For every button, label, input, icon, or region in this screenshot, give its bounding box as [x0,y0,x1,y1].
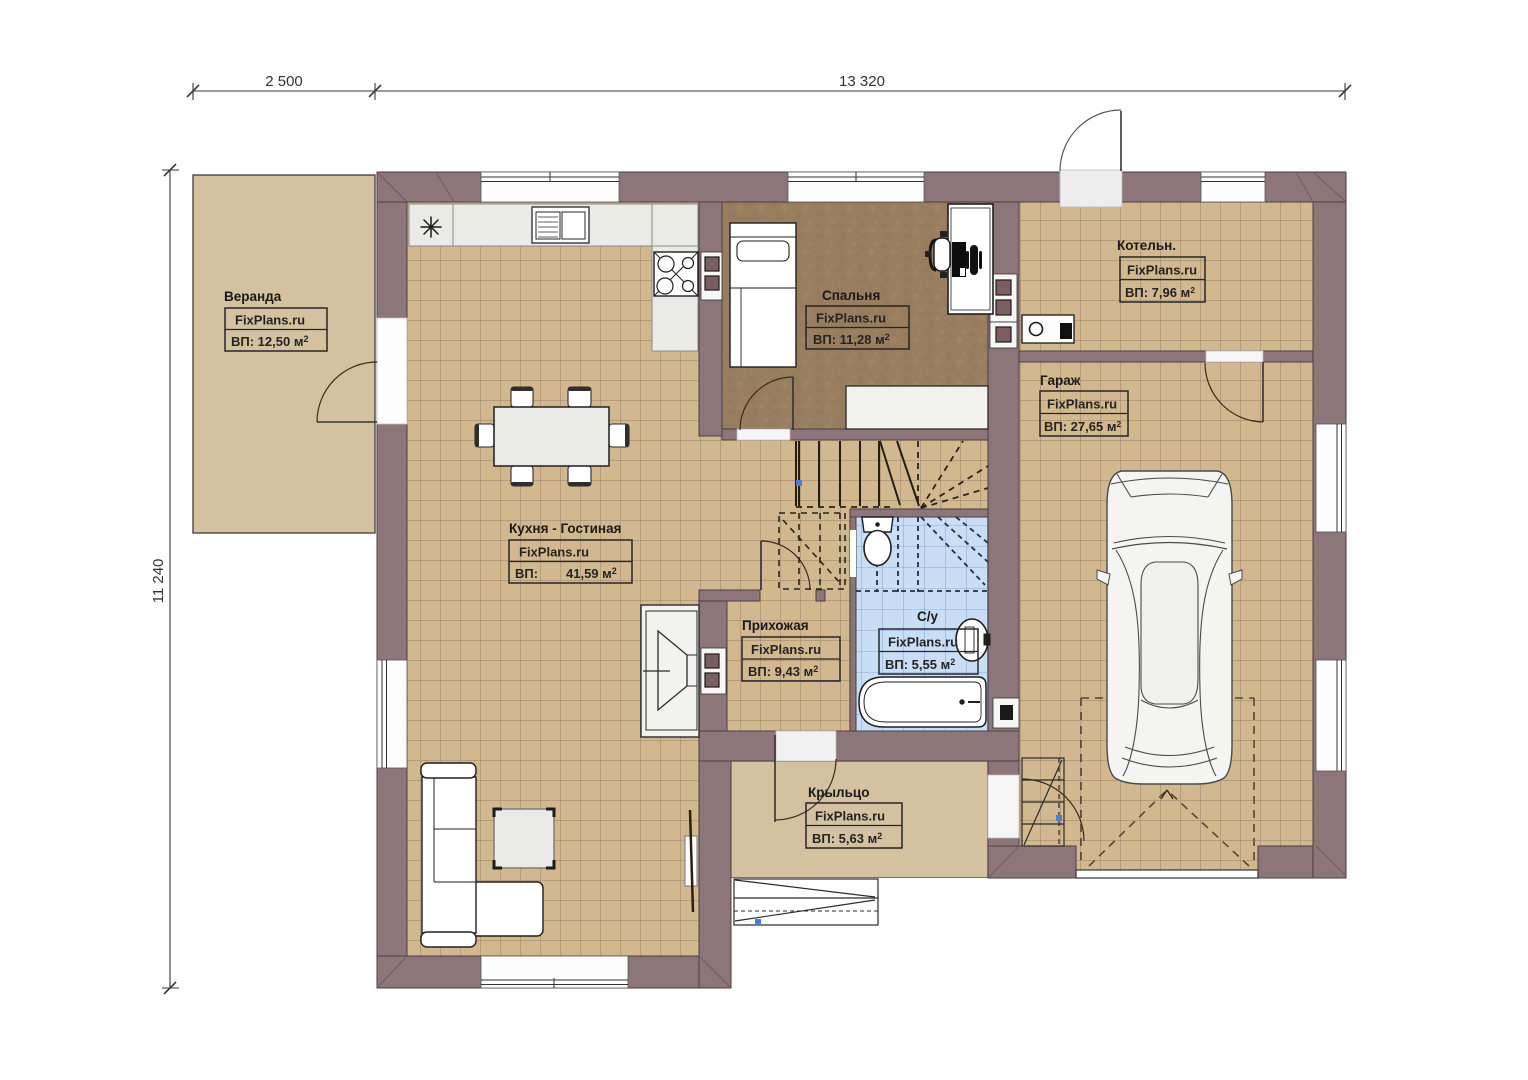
svg-text:13 320: 13 320 [839,73,885,90]
svg-text:ВП: 9,43 м2: ВП: 9,43 м2 [748,664,818,679]
svg-text:ВП: 11,28 м2: ВП: 11,28 м2 [813,332,890,347]
svg-text:ВП:: ВП: [515,566,538,581]
svg-text:ВП: 5,55 м2: ВП: 5,55 м2 [885,657,955,672]
svg-text:41,59 м2: 41,59 м2 [566,566,617,581]
svg-text:FixPlans.ru: FixPlans.ru [1047,397,1117,412]
svg-text:FixPlans.ru: FixPlans.ru [751,642,821,657]
svg-text:С/у: С/у [917,609,939,624]
svg-text:Гараж: Гараж [1040,373,1081,388]
svg-text:ВП: 27,65 м2: ВП: 27,65 м2 [1044,419,1121,434]
svg-text:Крыльцо: Крыльцо [808,785,869,800]
svg-text:Кухня - Гостиная: Кухня - Гостиная [509,521,621,536]
svg-text:FixPlans.ru: FixPlans.ru [1127,263,1197,278]
svg-text:Прихожая: Прихожая [742,618,809,633]
svg-text:FixPlans.ru: FixPlans.ru [888,635,958,650]
svg-text:FixPlans.ru: FixPlans.ru [519,545,589,560]
svg-text:FixPlans.ru: FixPlans.ru [816,311,886,326]
svg-text:FixPlans.ru: FixPlans.ru [815,809,885,824]
svg-text:ВП: 12,50 м2: ВП: 12,50 м2 [231,334,308,349]
svg-text:Веранда: Веранда [224,289,282,304]
svg-text:Спальня: Спальня [822,288,880,303]
svg-text:ВП: 7,96 м2: ВП: 7,96 м2 [1125,285,1195,300]
svg-text:11 240: 11 240 [150,559,167,604]
svg-text:FixPlans.ru: FixPlans.ru [235,313,305,328]
svg-text:ВП: 5,63 м2: ВП: 5,63 м2 [812,831,882,846]
svg-text:2 500: 2 500 [265,73,303,90]
svg-text:Котельн.: Котельн. [1117,238,1176,253]
